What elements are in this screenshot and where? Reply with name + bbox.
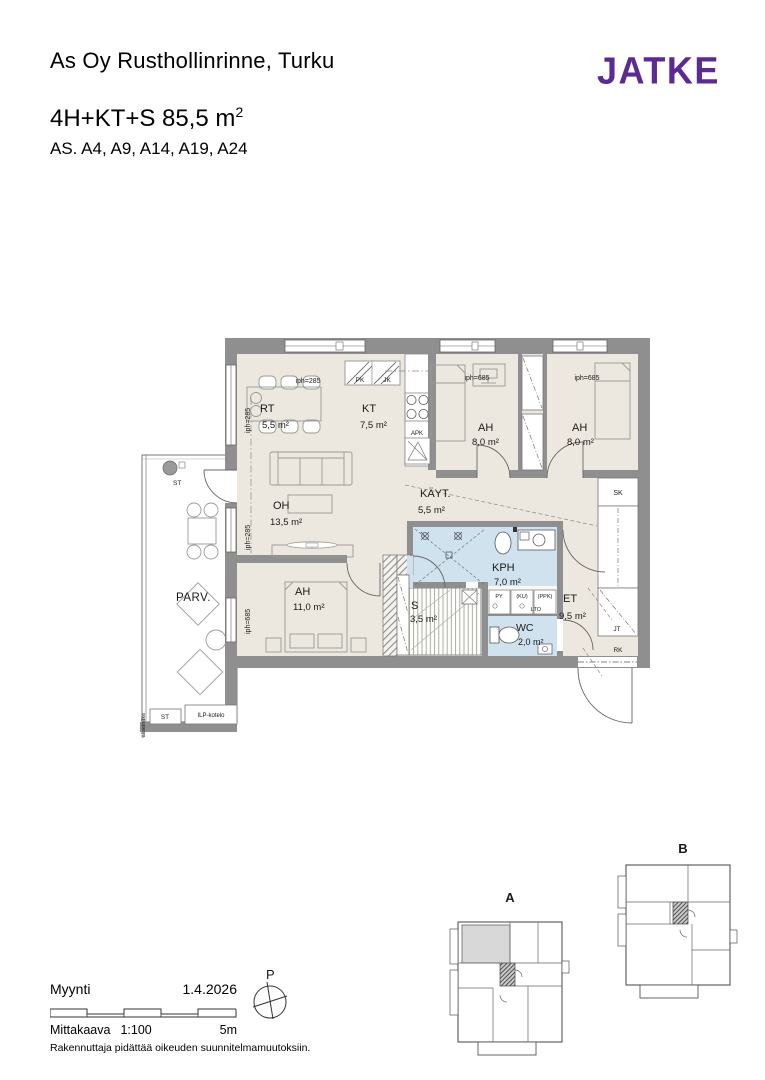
iph-label-1: iph=285 [295,378,320,385]
key-plan-a: A [450,890,569,1055]
jk-label: JK [383,377,391,384]
balcony: ST PARV. ST ILP-kotelo väliseinäke [140,455,237,738]
iph-label-3: iph=285 [245,525,252,550]
room-label-kt: KT [362,403,376,415]
room-label-s: S [411,600,418,612]
compass-icon: P [243,962,303,1026]
ku-label: (KU) [516,594,527,600]
apartment-numbers: AS. A4, A9, A14, A19, A24 [50,139,248,159]
balcony-grill [163,461,177,475]
scale-value: 1:100 [120,1023,151,1037]
room-area-rt: 5,5 m² [262,420,289,431]
stair-core-b [673,902,688,924]
compass-north-label: P [266,967,275,982]
washbasin-icon [495,532,511,554]
key-plan-b-label: B [678,841,687,856]
key-plan-b: B [618,841,737,998]
washing-machine-icon [513,527,555,550]
room-label-ah2: AH [572,422,587,434]
st-label-bottom: ST [161,714,169,721]
room-area-ah1: 8,0 m² [472,437,499,448]
room-area-kayt: 5,5 m² [418,505,445,516]
room-label-et: ET [563,593,577,605]
room-label-rt: RT [260,403,275,415]
window-top-3 [553,340,607,352]
rk-label: RK [613,647,623,654]
room-label-ah1: AH [478,422,493,434]
room-area-ah2: 8,0 m² [567,437,594,448]
project-title: As Oy Rusthollinrinne, Turku [50,48,334,74]
sink-unit-icon [405,438,430,464]
room-area-wc: 2,0 m² [518,637,544,647]
room-label-ah3: AH [295,586,310,598]
scale-end: 5m [220,1023,237,1037]
pk-label: PK [356,377,365,384]
floor-plan-sheet: As Oy Rusthollinrinne, Turku JATKE 4H+KT… [0,0,765,1080]
jt-label: JT [613,626,620,633]
stair-core-a [500,963,515,986]
scale-bar [50,1007,237,1019]
window-top-2 [440,340,495,352]
disclaimer: Rakennuttaja pidättää oikeuden suunnitel… [50,1042,310,1054]
st-label-top: ST [173,480,181,487]
ppk-label: (PPK) [538,594,553,600]
window-top-1 [285,340,365,352]
key-plan-a-label: A [505,890,515,905]
room-area-s: 3,5 m² [410,614,437,625]
iph-label-4: iph=685 [245,609,252,634]
key-plans: A B [440,830,760,1060]
apartment-type-sup: 2 [235,104,243,120]
iph-label-5: iph=685 [464,375,489,382]
toilet-icon [490,627,519,643]
main-floor-plan: ST PARV. ST ILP-kotelo väliseinäke [140,338,652,738]
iph-label-2: iph=285 [245,408,252,433]
scale-caption: Mittakaava 1:100 5m [50,1023,237,1037]
date-label: 1.4.2026 [150,981,237,997]
window-left-rt [226,365,236,445]
room-label-kph: KPH [492,562,515,574]
apartment-type: 4H+KT+S 85,5 m2 [50,104,243,133]
sk-label: SK [613,490,623,497]
iph-label-6: iph=685 [574,375,599,382]
py-label: PY [495,594,503,600]
jatke-logo: JATKE [597,49,720,93]
ilp-kotelo-label: ILP-kotelo [197,713,225,719]
window-left-ah3 [226,598,236,642]
entry-opening [578,657,637,667]
room-label-kayt: KÄYT. [420,488,451,500]
room-area-oh: 13,5 m² [270,517,302,528]
apk-label: APK [411,431,423,437]
lto-label: LTO [531,607,542,613]
highlighted-apartment [462,925,510,963]
room-label-oh: OH [273,500,290,512]
balcony-door-opening [225,470,237,503]
room-area-et: 9,5 m² [559,611,586,622]
hatched-wall [383,555,397,656]
partition-label: väliseinäke [141,713,147,738]
room-label-parv: PARV. [176,592,211,604]
apartment-type-text: 4H+KT+S 85,5 m [50,105,235,132]
room-area-kph: 7,0 m² [494,577,521,588]
room-area-ah3: 11,0 m² [293,602,325,613]
scale-word: Mittakaava [50,1023,110,1037]
room-area-kt: 7,5 m² [360,420,387,431]
status-label: Myynti [50,981,90,997]
window-left-oh [226,508,236,552]
room-label-wc: WC [516,622,534,634]
